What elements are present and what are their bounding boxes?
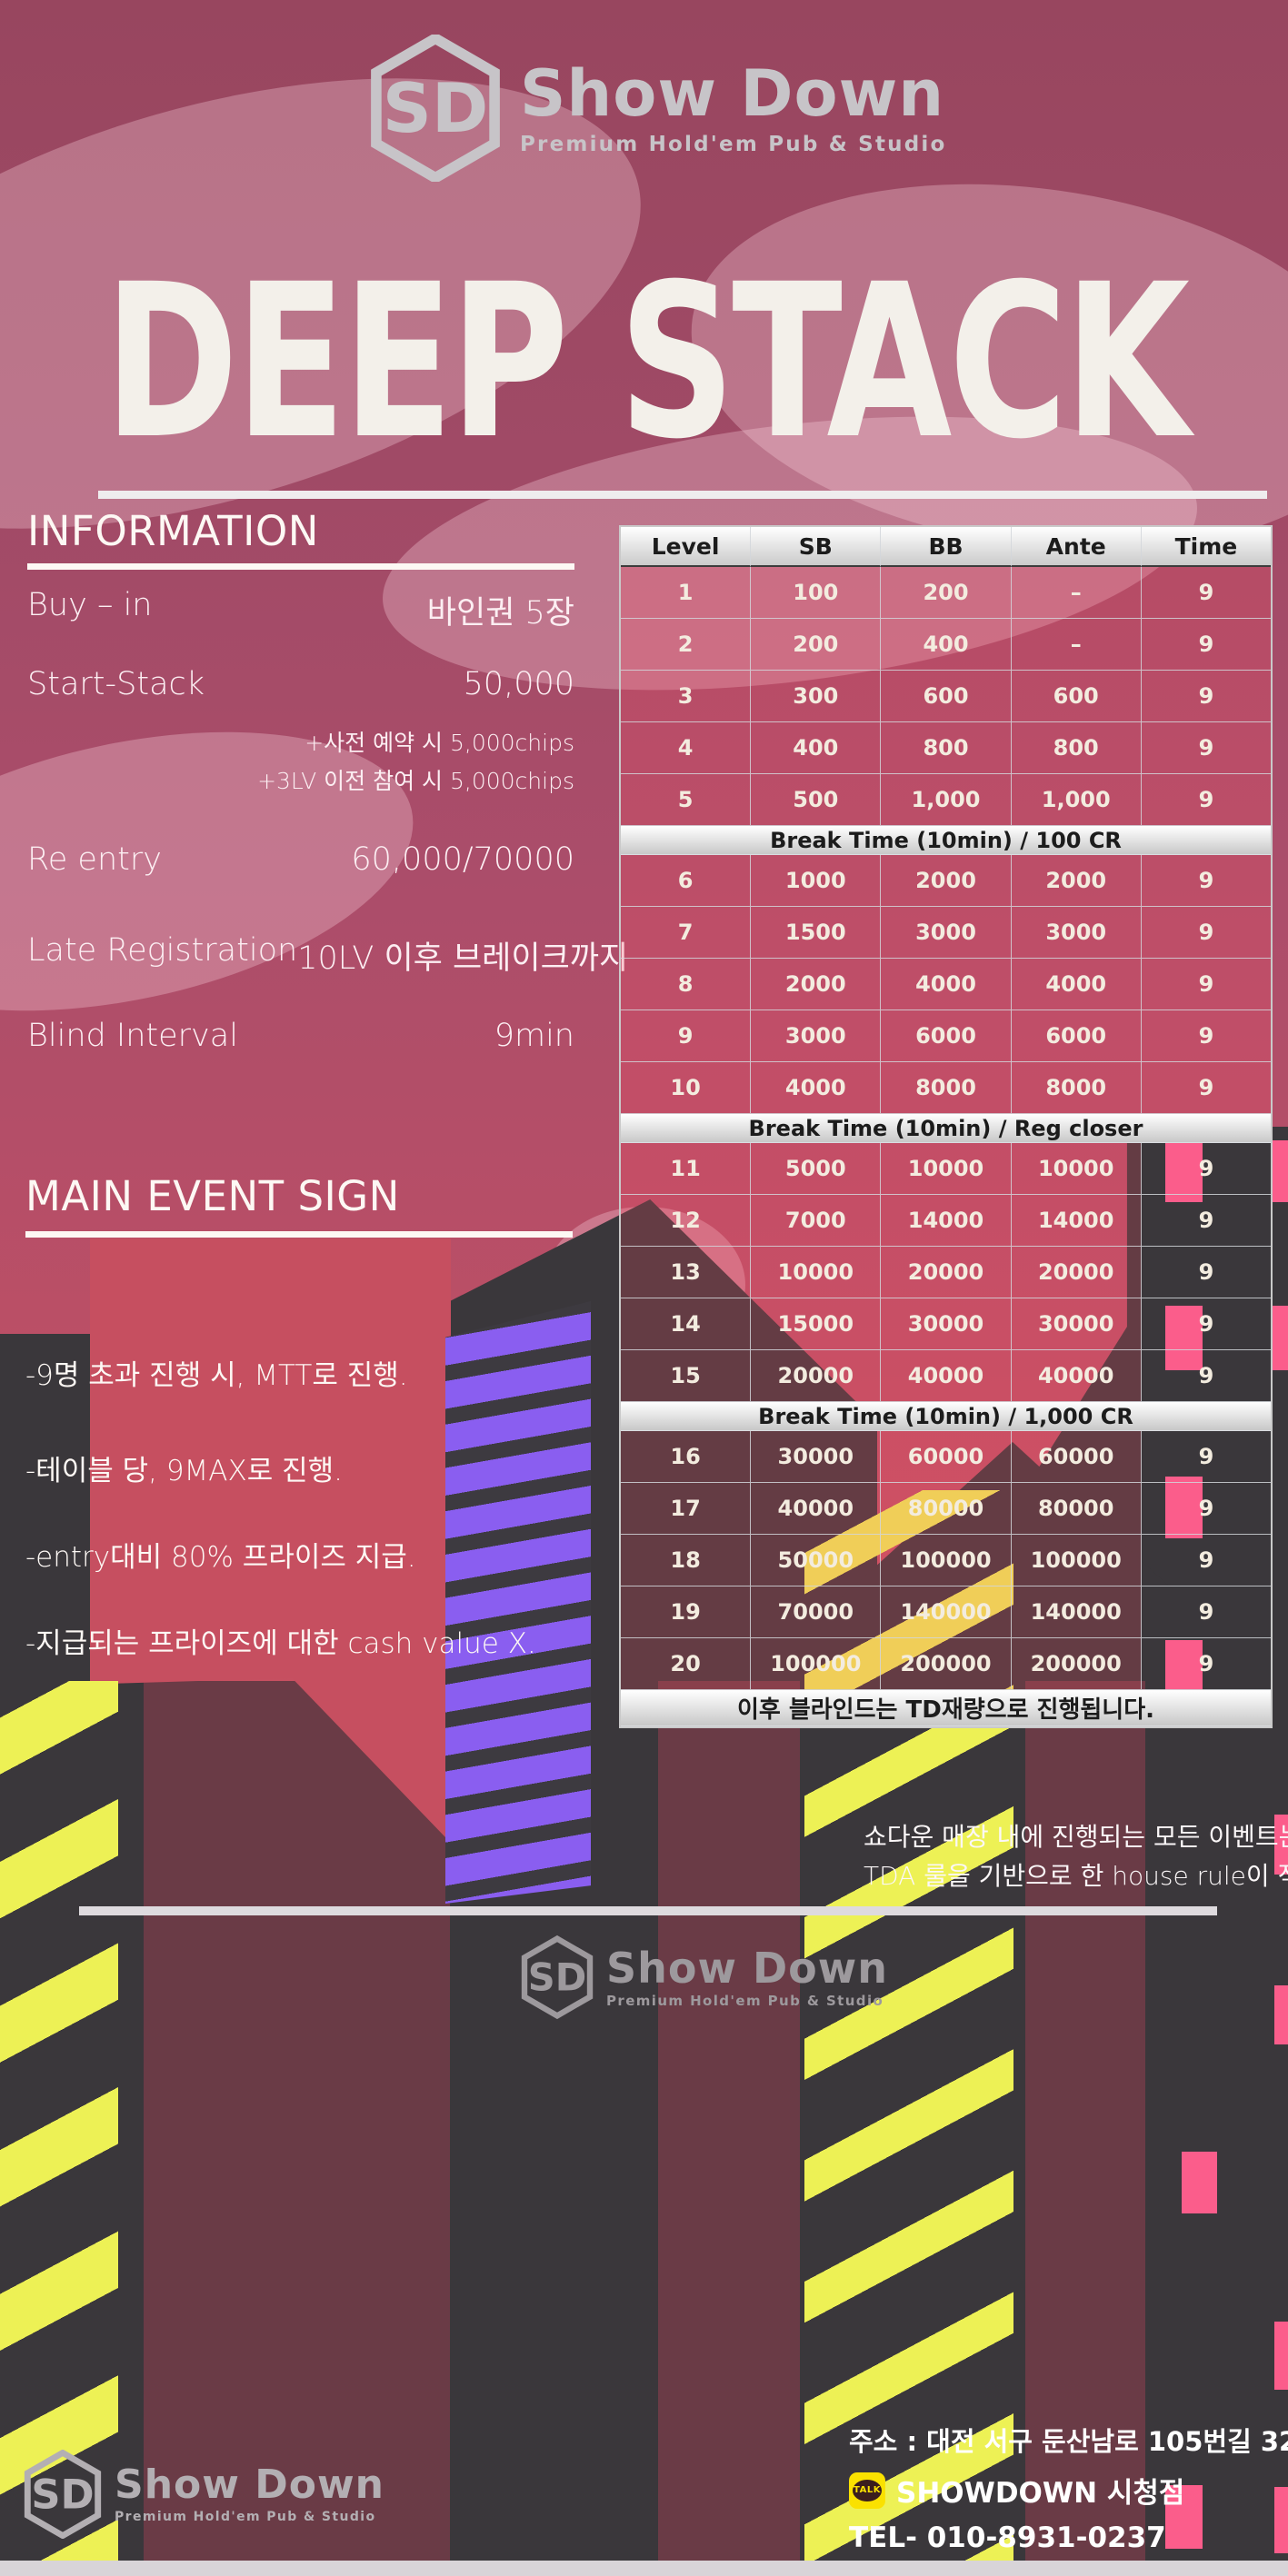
table-cell: 300 [751,671,881,722]
table-row: 12700014000140009 [621,1195,1271,1247]
table-cell: 18 [621,1535,751,1586]
info-row: Late Registration 10LV 이후 브레이크까지 [27,932,574,979]
table-cell: 6 [621,855,751,907]
table-cell: 9 [1142,619,1271,671]
brand-name: Show Down [606,1947,888,1989]
break-time-band: Break Time (10min) / 100 CR [621,826,1271,855]
table-cell: 140000 [881,1586,1011,1638]
sd-hexagon-icon: SD [364,35,507,182]
information-section: INFORMATION Buy – in 바인권 5장 Start-Stack … [27,507,574,555]
brand-tagline: Premium Hold'em Pub & Studio [115,2511,384,2523]
info-label: Buy – in [27,587,152,633]
info-label: Late Registration [27,932,297,979]
neon-window [1274,1985,1288,2044]
table-row: 2200400–9 [621,619,1271,671]
info-row: Buy – in 바인권 5장 [27,587,574,633]
table-cell: 140000 [1012,1586,1142,1638]
table-header-row: LevelSBBBAnteTime [621,527,1271,567]
blind-table: LevelSBBBAnteTime1100200–92200400–933006… [619,525,1273,1728]
table-cell: 3000 [881,907,1011,959]
kakaotalk-icon: TALK [849,2472,885,2509]
break-time-band: Break Time (10min) / 1,000 CR [621,1402,1271,1431]
table-cell: 80000 [881,1483,1011,1535]
table-cell: 2000 [751,959,881,1010]
neon-window [1182,2152,1217,2213]
table-cell: 100000 [1012,1535,1142,1586]
notice-line: TDA 룰을 기반으로 한 house rule이 적용됩니다. [864,1856,1282,1895]
yellow-neon-stripes [0,1681,118,2576]
brand-tagline: Premium Hold'em Pub & Studio [520,134,946,155]
table-cell: 1 [621,567,751,619]
table-cell: 600 [881,671,1011,722]
table-cell: 10000 [881,1143,1011,1195]
table-cell: 9 [1142,1298,1271,1350]
table-cell: 1500 [751,907,881,959]
table-row: 152000040000400009 [621,1350,1271,1402]
main-event-bullet: -9명 초과 진행 시, MTT로 진행. [25,1352,408,1393]
table-cell: 1000 [751,855,881,907]
table-header-cell: SB [751,527,881,567]
table-cell: 9 [1142,1010,1271,1062]
table-row: 82000400040009 [621,959,1271,1010]
table-footer-note: 이후 블라인드는 TD재량으로 진행됩니다. [621,1690,1271,1726]
table-cell: 10000 [1012,1143,1142,1195]
kakao-row: TALK SHOWDOWN 시청점 [849,2470,1288,2511]
table-cell: 9 [1142,1638,1271,1690]
section-underline [25,1231,573,1238]
info-row: Blind Interval 9min [27,1018,574,1054]
table-cell: 4000 [751,1062,881,1114]
notice-line: 쇼다운 매장 내에 진행되는 모든 이벤트는 [864,1817,1282,1856]
table-cell: 2000 [881,855,1011,907]
table-row: 11500010000100009 [621,1143,1271,1195]
table-cell: 9 [1142,774,1271,826]
table-cell: 1,000 [881,774,1011,826]
table-cell: 20000 [751,1350,881,1402]
table-header-cell: Time [1142,527,1271,567]
page-title: DEEP STACK [102,256,1190,469]
address: 주소 : 대전 서구 둔산남로 105번길 32, 2층 [849,2421,1288,2459]
table-cell: 9 [1142,722,1271,774]
table-cell: 30000 [881,1298,1011,1350]
table-header-cell: Ante [1012,527,1142,567]
table-cell: 40000 [751,1483,881,1535]
footer-divider [79,1906,1217,1915]
table-cell: 70000 [751,1586,881,1638]
table-cell: 8 [621,959,751,1010]
table-row: 19700001400001400009 [621,1586,1271,1638]
table-cell: 15000 [751,1298,881,1350]
table-cell: 9 [1142,567,1271,619]
kakao-channel-name: SHOWDOWN 시청점 [896,2470,1184,2511]
table-row: 141500030000300009 [621,1298,1271,1350]
info-label: Re entry [27,841,162,878]
info-row: Start-Stack 50,000 [27,666,574,702]
brand-logo: SD Show Down Premium Hold'em Pub & Studi… [364,35,946,182]
main-event-heading: MAIN EVENT SIGN [25,1172,625,1220]
table-cell: 40000 [1012,1350,1142,1402]
table-cell: 5000 [751,1143,881,1195]
brand-tagline: Premium Hold'em Pub & Studio [606,1994,888,2008]
table-cell: 20 [621,1638,751,1690]
table-cell: 2000 [1012,855,1142,907]
table-cell: 5 [621,774,751,826]
section-underline [27,563,574,570]
table-cell: 15 [621,1350,751,1402]
table-cell: 30000 [751,1431,881,1483]
main-event-section: MAIN EVENT SIGN -9명 초과 진행 시, MTT로 진행. -테… [25,1172,625,1220]
table-cell: 14 [621,1298,751,1350]
main-event-bullet: -테이블 당, 9MAX로 진행. [25,1447,343,1488]
table-cell: 600 [1012,671,1142,722]
table-cell: 14000 [881,1195,1011,1247]
info-value: 10LV 이후 브레이크까지 [297,932,628,979]
table-cell: 3000 [751,1010,881,1062]
sd-hexagon-icon: SD [24,2450,102,2539]
table-cell: 3000 [1012,907,1142,959]
table-cell: 3 [621,671,751,722]
table-row: 44008008009 [621,722,1271,774]
table-header-cell: Level [621,527,751,567]
table-cell: 9 [1142,1483,1271,1535]
table-cell: 9 [1142,1195,1271,1247]
table-cell: 200000 [1012,1638,1142,1690]
table-cell: 7 [621,907,751,959]
table-row: 33006006009 [621,671,1271,722]
table-cell: 10 [621,1062,751,1114]
table-row: 61000200020009 [621,855,1271,907]
phone-number: TEL- 010-8931-0237 [849,2521,1288,2554]
table-cell: 1,000 [1012,774,1142,826]
table-row: 55001,0001,0009 [621,774,1271,826]
info-value: 9min [494,1018,574,1054]
table-cell: 2 [621,619,751,671]
bottom-strip [0,2561,1288,2576]
table-cell: 19 [621,1586,751,1638]
brand-logo: SD Show Down Premium Hold'em Pub & Studi… [24,2450,384,2539]
info-value: 50,000 [464,666,574,702]
table-cell: 20000 [881,1247,1011,1298]
main-event-bullet: -지급되는 프라이즈에 대한 cash value X. [25,1620,536,1661]
table-row: 93000600060009 [621,1010,1271,1062]
neon-window [1273,1306,1288,1370]
house-rule-notice: 쇼다운 매장 내에 진행되는 모든 이벤트는 TDA 룰을 기반으로 한 hou… [864,1817,1282,1896]
table-cell: 7000 [751,1195,881,1247]
table-cell: 200 [751,619,881,671]
table-cell: 11 [621,1143,751,1195]
table-cell: – [1012,619,1142,671]
table-cell: 14000 [1012,1195,1142,1247]
table-cell: 9 [1142,1247,1271,1298]
contact-block: 주소 : 대전 서구 둔산남로 105번길 32, 2층 TALK SHOWDO… [849,2421,1288,2554]
table-row: 201000002000002000009 [621,1638,1271,1690]
table-row: 104000800080009 [621,1062,1271,1114]
brand-name: Show Down [115,2465,384,2505]
sd-hexagon-icon: SD [521,1932,594,2023]
table-cell: 9 [1142,1586,1271,1638]
table-cell: 100000 [751,1638,881,1690]
info-row: Re entry 60,000/70000 [27,841,574,878]
info-value: 바인권 5장 [427,587,574,633]
table-cell: 9 [1142,855,1271,907]
table-cell: 4 [621,722,751,774]
table-cell: 9 [1142,671,1271,722]
table-row: 131000020000200009 [621,1247,1271,1298]
title-divider [98,491,1267,499]
table-row: 174000080000800009 [621,1483,1271,1535]
info-note: +3LV 이전 참여 시 5,000chips [257,763,574,796]
neon-window [1273,1140,1288,1202]
table-cell: 12 [621,1195,751,1247]
svg-text:SD: SD [383,68,489,148]
table-cell: 30000 [1012,1298,1142,1350]
table-cell: 60000 [1012,1431,1142,1483]
table-row: 1100200–9 [621,567,1271,619]
purple-striped-building [445,1301,591,1904]
city-building-maroon [658,1681,800,2576]
table-cell: 9 [1142,1062,1271,1114]
city-building-maroon [144,1681,450,2576]
neon-window [1274,2322,1288,2390]
table-row: 163000060000600009 [621,1431,1271,1483]
brand-name: Show Down [520,62,946,125]
table-cell: – [1012,567,1142,619]
main-event-bullet: -entry대비 80% 프라이즈 지급. [25,1534,416,1575]
table-cell: 9 [1142,1350,1271,1402]
table-cell: 400 [751,722,881,774]
table-cell: 500 [751,774,881,826]
brand-logo: SD Show Down Premium Hold'em Pub & Studi… [521,1932,888,2023]
break-time-band: Break Time (10min) / Reg closer [621,1114,1271,1143]
table-cell: 9 [1142,907,1271,959]
table-cell: 200 [881,567,1011,619]
table-cell: 80000 [1012,1483,1142,1535]
table-cell: 20000 [1012,1247,1142,1298]
table-cell: 200000 [881,1638,1011,1690]
info-note: +사전 예약 시 5,000chips [305,725,574,758]
table-cell: 13 [621,1247,751,1298]
table-cell: 100 [751,567,881,619]
table-header-cell: BB [881,527,1011,567]
table-cell: 9 [1142,1143,1271,1195]
table-row: 71500300030009 [621,907,1271,959]
table-cell: 4000 [1012,959,1142,1010]
table-cell: 10000 [751,1247,881,1298]
table-cell: 8000 [1012,1062,1142,1114]
table-cell: 4000 [881,959,1011,1010]
info-label: Blind Interval [27,1018,238,1054]
table-cell: 16 [621,1431,751,1483]
table-cell: 6000 [881,1010,1011,1062]
info-label: Start-Stack [27,666,205,702]
poster: SD Show Down Premium Hold'em Pub & Studi… [0,0,1288,2576]
table-cell: 6000 [1012,1010,1142,1062]
table-cell: 40000 [881,1350,1011,1402]
table-cell: 17 [621,1483,751,1535]
info-value: 60,000/70000 [351,841,574,878]
table-cell: 60000 [881,1431,1011,1483]
table-cell: 400 [881,619,1011,671]
table-cell: 9 [1142,1431,1271,1483]
table-cell: 9 [1142,959,1271,1010]
table-cell: 50000 [751,1535,881,1586]
table-cell: 9 [621,1010,751,1062]
svg-text:SD: SD [31,2470,94,2518]
table-cell: 800 [881,722,1011,774]
table-cell: 8000 [881,1062,1011,1114]
table-cell: 100000 [881,1535,1011,1586]
table-cell: 9 [1142,1535,1271,1586]
svg-text:SD: SD [528,1954,586,1999]
information-heading: INFORMATION [27,507,574,555]
table-row: 18500001000001000009 [621,1535,1271,1586]
table-cell: 800 [1012,722,1142,774]
